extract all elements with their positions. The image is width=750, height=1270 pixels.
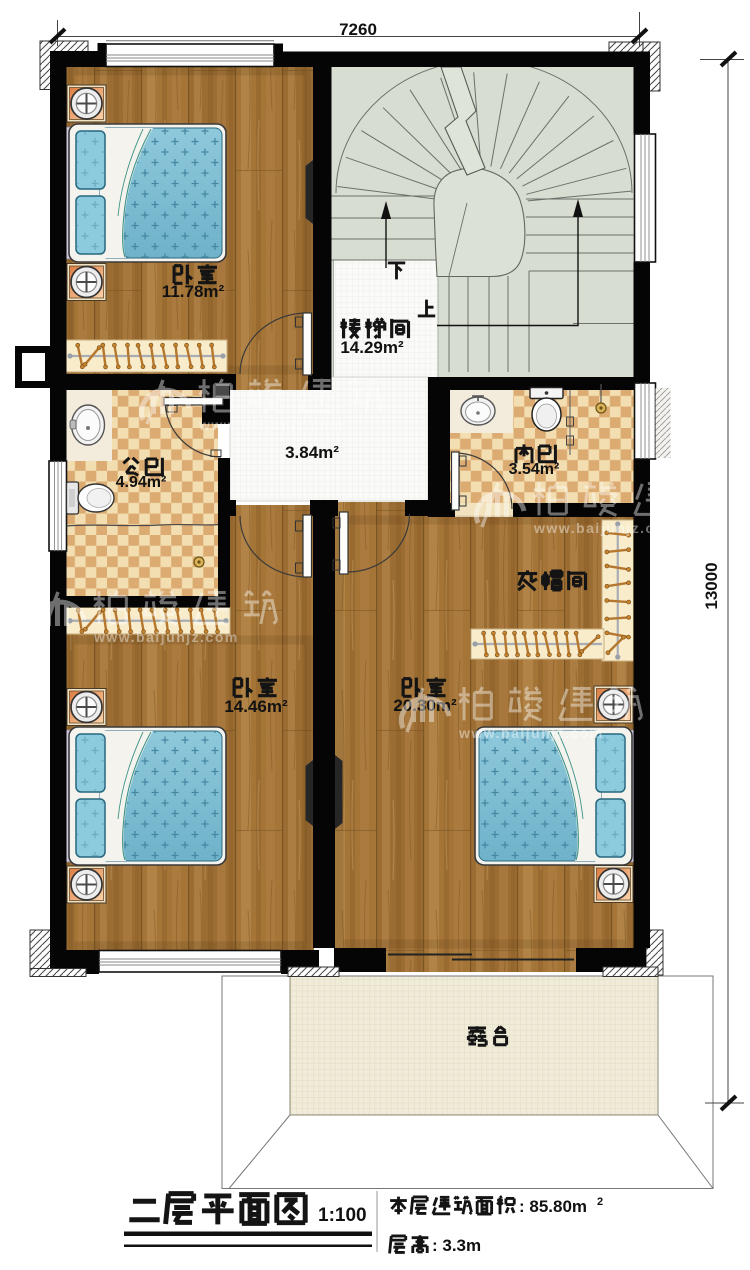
svg-text:11.78m²: 11.78m² xyxy=(162,282,225,301)
svg-text:4.94m²: 4.94m² xyxy=(116,474,167,491)
svg-text:2: 2 xyxy=(597,1196,603,1208)
svg-text:13000: 13000 xyxy=(702,562,721,609)
svg-text:7260: 7260 xyxy=(339,20,377,39)
svg-text:14.46m²: 14.46m² xyxy=(224,697,288,716)
svg-text:1:100: 1:100 xyxy=(318,1205,367,1226)
svg-text:www.baijunjz.com: www.baijunjz.com xyxy=(458,725,604,741)
svg-text:www.baijunjz.com: www.baijunjz.com xyxy=(198,417,344,433)
svg-text:14.29m²: 14.29m² xyxy=(340,338,404,357)
svg-text:3.54m²: 3.54m² xyxy=(509,461,560,478)
svg-text:: 85.80m: : 85.80m xyxy=(519,1197,587,1216)
svg-text:3.84m²: 3.84m² xyxy=(285,443,339,462)
svg-text:www.baijunjz.com: www.baijunjz.com xyxy=(533,520,679,536)
svg-text:: 3.3m: : 3.3m xyxy=(432,1236,481,1255)
svg-text:www.baijunjz.com: www.baijunjz.com xyxy=(93,629,239,645)
